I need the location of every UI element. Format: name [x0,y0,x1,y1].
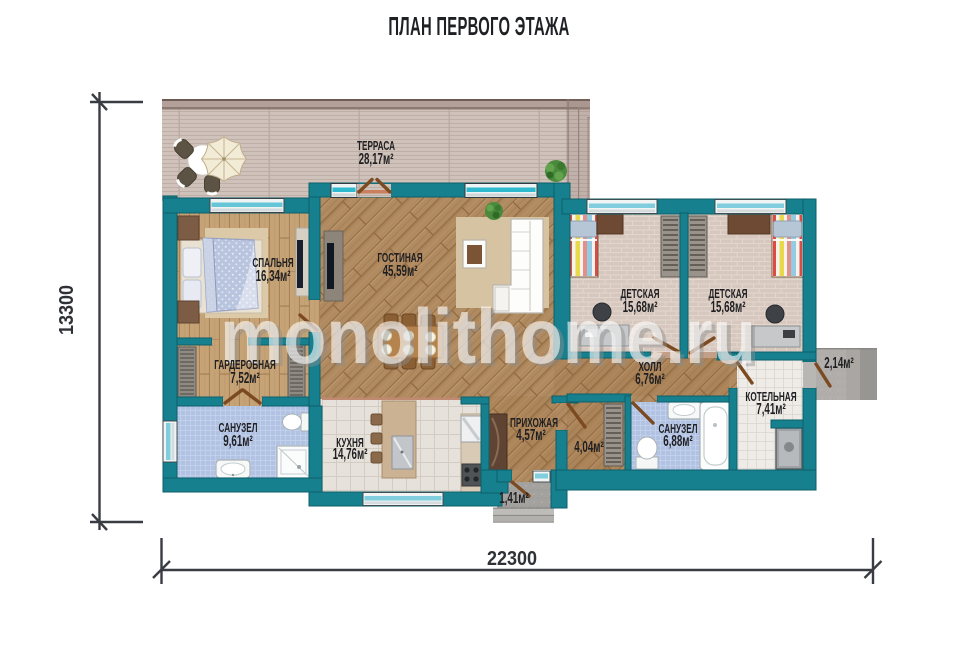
svg-text:7,52м²: 7,52м² [230,369,260,387]
svg-text:monolithome.ru: monolithome.ru [220,292,756,380]
svg-text:9,61м²: 9,61м² [223,432,253,450]
svg-text:2,14м²: 2,14м² [824,354,854,372]
svg-text:1,41м²: 1,41м² [499,489,529,507]
svg-text:13300: 13300 [56,285,78,335]
svg-text:14,76м²: 14,76м² [333,445,368,463]
svg-text:4,57м²: 4,57м² [516,426,546,444]
svg-text:22300: 22300 [487,548,537,570]
svg-text:6,88м²: 6,88м² [663,432,693,450]
svg-text:7,41м²: 7,41м² [756,400,786,418]
svg-text:6,76м²: 6,76м² [635,370,665,388]
svg-text:ПЛАН ПЕРВОГО ЭТАЖА: ПЛАН ПЕРВОГО ЭТАЖА [388,13,569,41]
svg-text:15,68м²: 15,68м² [711,298,746,316]
svg-text:15,68м²: 15,68м² [623,298,658,316]
svg-text:28,17м²: 28,17м² [359,150,394,168]
svg-text:16,34м²: 16,34м² [256,267,291,285]
svg-text:4,04м²: 4,04м² [574,438,604,456]
svg-text:45,59м²: 45,59м² [383,262,418,280]
